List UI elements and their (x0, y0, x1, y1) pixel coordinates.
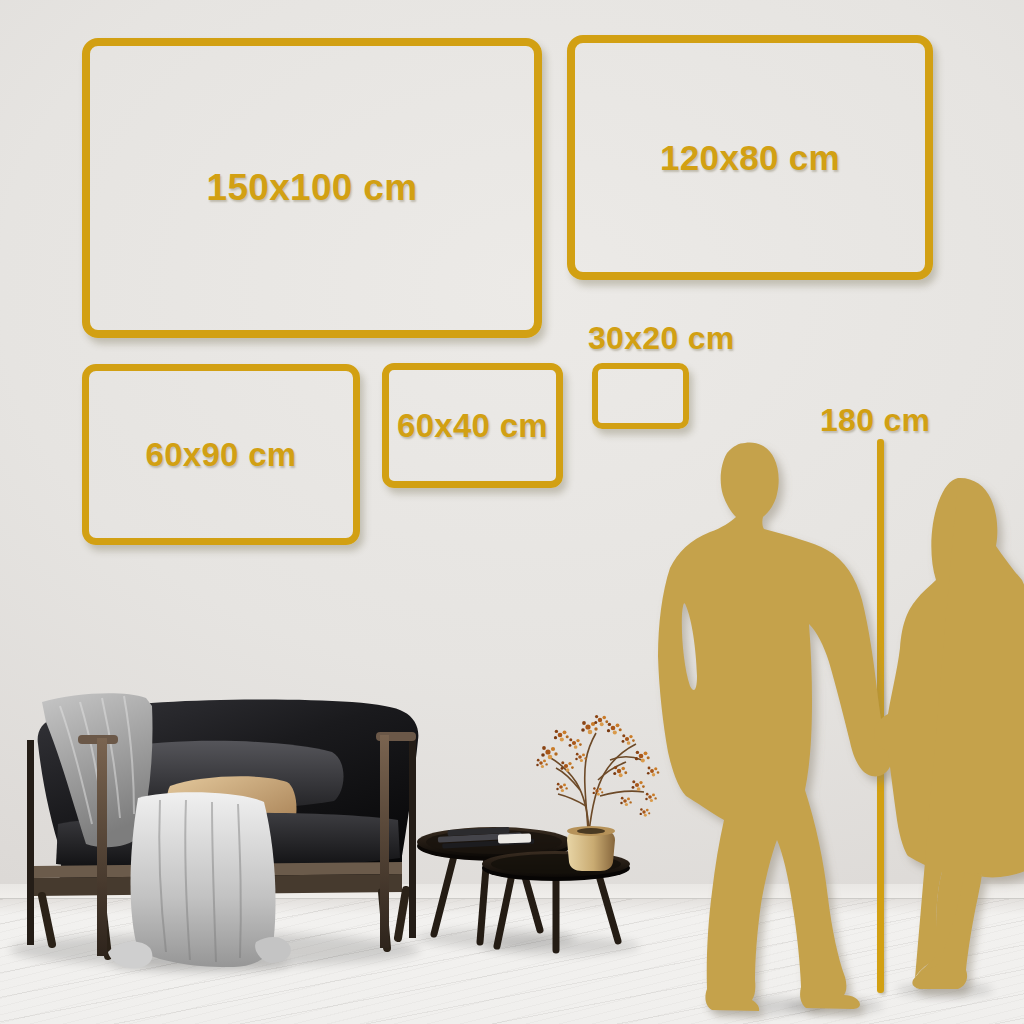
height-label: 180 cm (820, 402, 930, 439)
size-label-60x90: 60x90 cm (145, 436, 296, 474)
floor (0, 899, 1024, 1024)
size-frame-120x80: 120x80 cm (567, 35, 933, 280)
wall-art-size-guide: 150x100 cm 120x80 cm 60x90 cm 60x40 cm 3… (0, 0, 1024, 1024)
size-label-150x100: 150x100 cm (207, 167, 418, 209)
size-frame-60x40: 60x40 cm (382, 363, 563, 488)
size-frame-60x90: 60x90 cm (82, 364, 360, 545)
size-label-120x80: 120x80 cm (660, 138, 840, 178)
size-label-60x40: 60x40 cm (397, 407, 548, 445)
size-frame-150x100: 150x100 cm (82, 38, 542, 338)
baseboard (0, 884, 1024, 899)
size-frame-30x20 (592, 363, 689, 429)
height-measure-line (877, 439, 884, 993)
size-label-30x20: 30x20 cm (588, 320, 735, 357)
